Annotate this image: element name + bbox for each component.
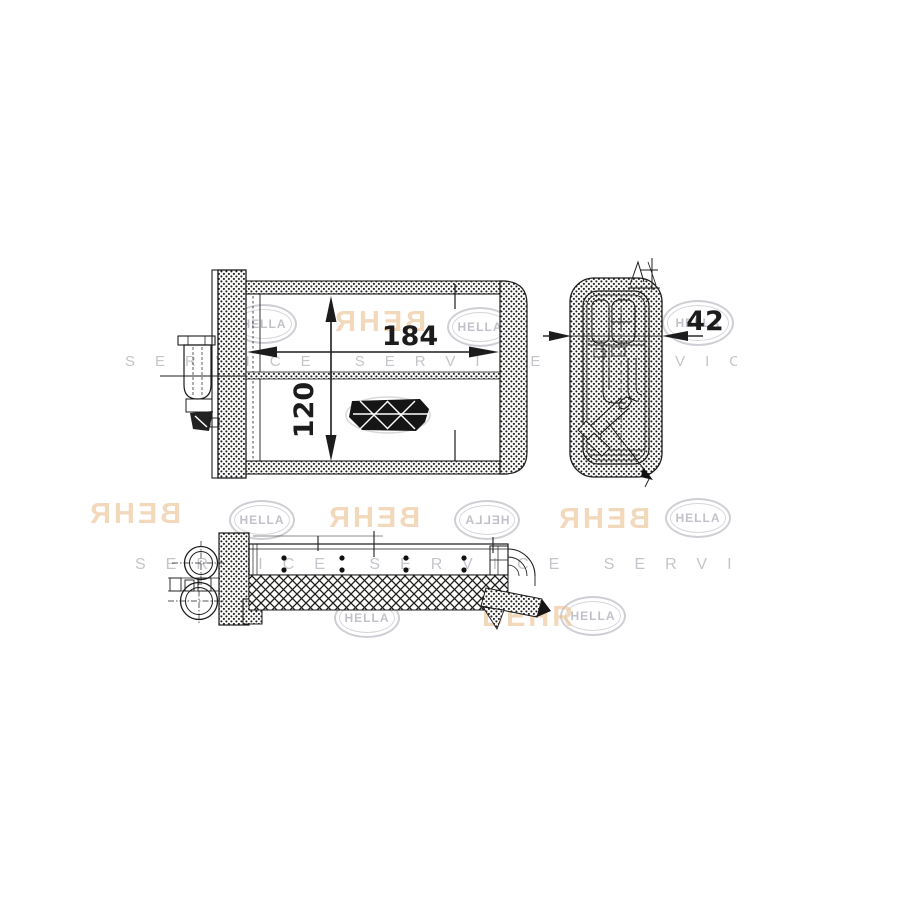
front-left-tank [218, 270, 246, 478]
dimension-height-label: 120 [289, 382, 320, 438]
front-pipe-fitting [178, 336, 219, 431]
screenshot-canvas: HELLA HELLA HELLA HELLA HELLA HELLA HELL… [0, 0, 900, 900]
front-right-tank [500, 281, 527, 474]
front-stamp-mark [346, 397, 430, 433]
side-view: 42 [543, 258, 724, 487]
bottom-flange [249, 531, 508, 575]
dimension-width-label: 184 [382, 321, 438, 352]
dimension-depth-label: 42 [686, 306, 724, 337]
front-left-wall [212, 270, 218, 478]
front-view: 184 120 [160, 270, 527, 478]
bottom-view [168, 531, 551, 629]
front-divider [246, 372, 500, 379]
front-top-strip [246, 281, 505, 294]
dimension-width: 184 [247, 321, 499, 358]
technical-drawing: 184 120 [0, 0, 900, 900]
side-outer-ring [570, 278, 662, 477]
bottom-hatched-band [249, 575, 508, 610]
front-bottom-strip [246, 461, 505, 474]
bottom-pipe-ports [168, 541, 226, 625]
